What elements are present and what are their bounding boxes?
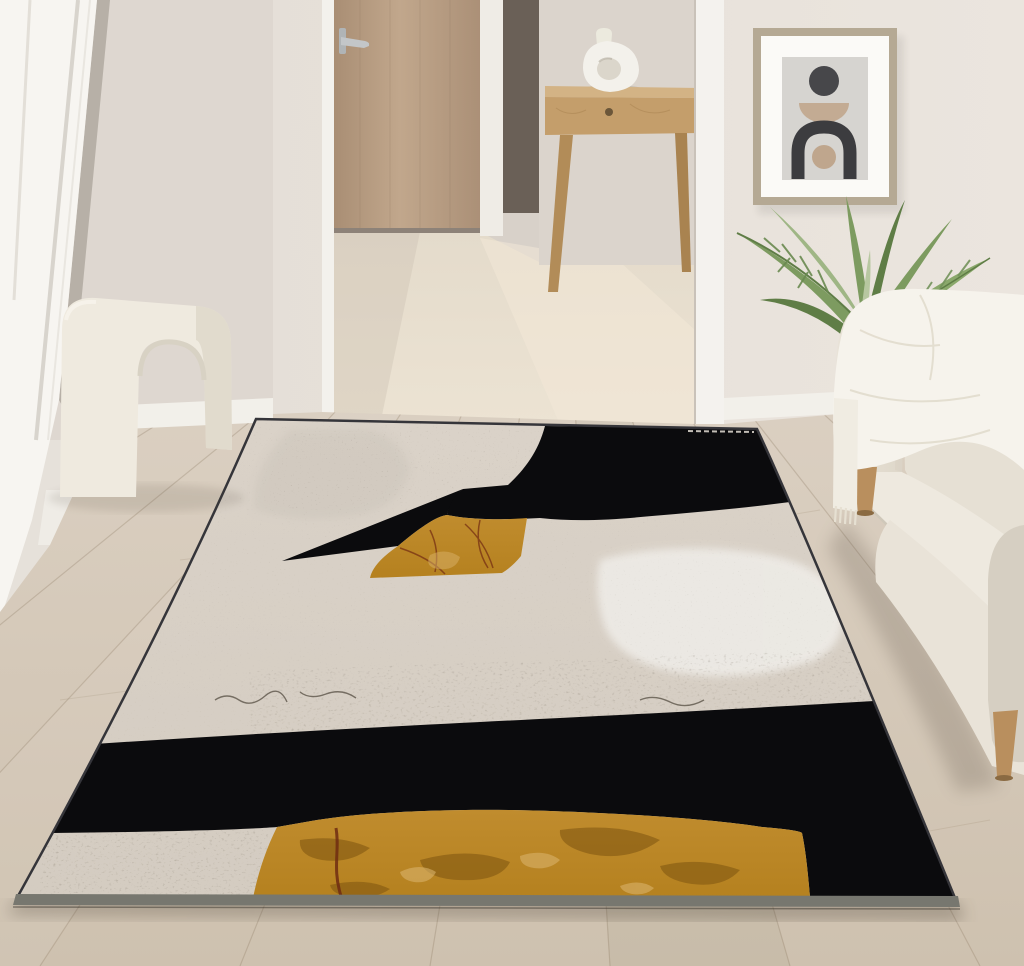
rug-serged-edge xyxy=(13,894,960,907)
opening-trim-right xyxy=(695,0,724,428)
rug-edge-highlight xyxy=(688,431,754,432)
console-drawer-front xyxy=(545,97,700,135)
door-threshold xyxy=(334,228,480,233)
drawer-knob xyxy=(605,108,613,116)
opening-trim-left xyxy=(322,0,334,422)
sofa-leg-right-foot xyxy=(995,775,1013,781)
framed-art xyxy=(753,28,904,214)
sofa-leg-foot xyxy=(856,510,874,516)
art-circle-shape xyxy=(809,66,839,96)
dark-doorway-slot xyxy=(503,0,539,213)
door-panel xyxy=(334,0,480,232)
art-arch-circle xyxy=(812,145,836,169)
living-room-photo xyxy=(0,0,1024,966)
rug-speckle-bottomleft xyxy=(40,830,270,898)
door-jamb-right xyxy=(480,0,503,236)
throw-hanging-end xyxy=(833,398,858,512)
hallway-door xyxy=(334,0,480,233)
hallway-opening xyxy=(322,0,695,430)
